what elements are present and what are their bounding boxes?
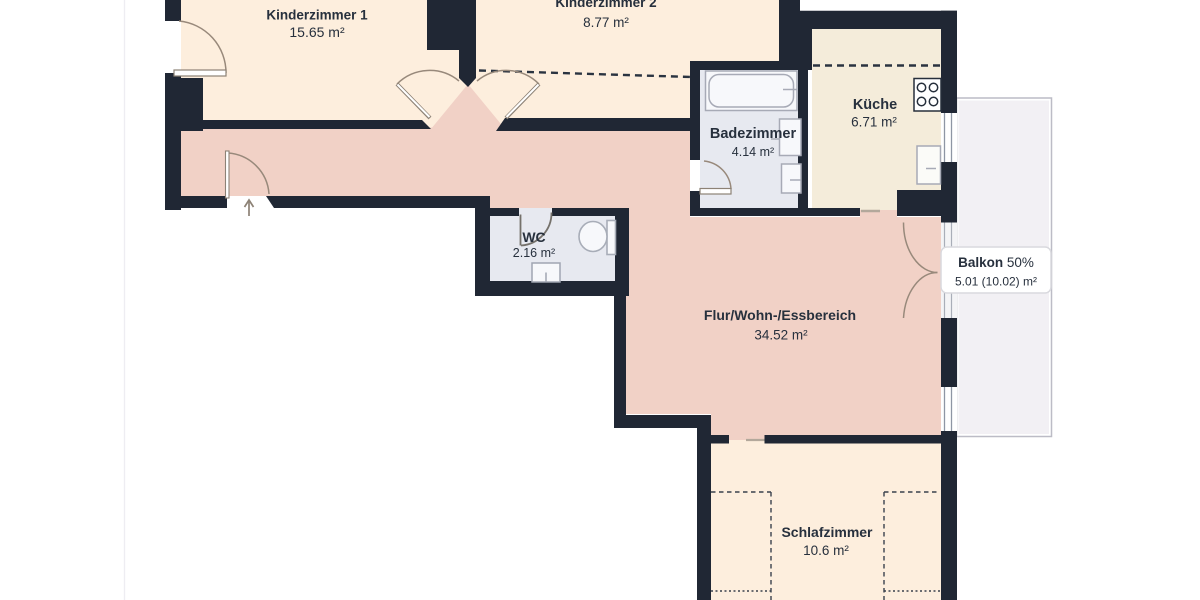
svg-text:Küche: Küche <box>853 97 897 113</box>
svg-text:Balkon 50%: Balkon 50% <box>958 255 1034 270</box>
svg-text:8.77 m²: 8.77 m² <box>583 15 629 30</box>
svg-text:34.52 m²: 34.52 m² <box>754 327 808 342</box>
svg-text:Kinderzimmer 2: Kinderzimmer 2 <box>555 0 656 10</box>
svg-text:5.01 (10.02) m²: 5.01 (10.02) m² <box>955 275 1037 289</box>
svg-text:2.16 m²: 2.16 m² <box>513 246 555 260</box>
svg-text:Badezimmer: Badezimmer <box>710 126 797 142</box>
svg-text:4.14 m²: 4.14 m² <box>732 145 774 159</box>
svg-text:WC: WC <box>522 229 545 245</box>
svg-text:Schlafzimmer: Schlafzimmer <box>781 524 873 540</box>
svg-text:Flur/Wohn-/Essbereich: Flur/Wohn-/Essbereich <box>704 307 856 323</box>
svg-text:15.65 m²: 15.65 m² <box>289 24 345 40</box>
svg-text:6.71 m²: 6.71 m² <box>851 114 897 129</box>
svg-text:Kinderzimmer 1: Kinderzimmer 1 <box>266 8 368 23</box>
svg-text:10.6 m²: 10.6 m² <box>803 543 849 558</box>
